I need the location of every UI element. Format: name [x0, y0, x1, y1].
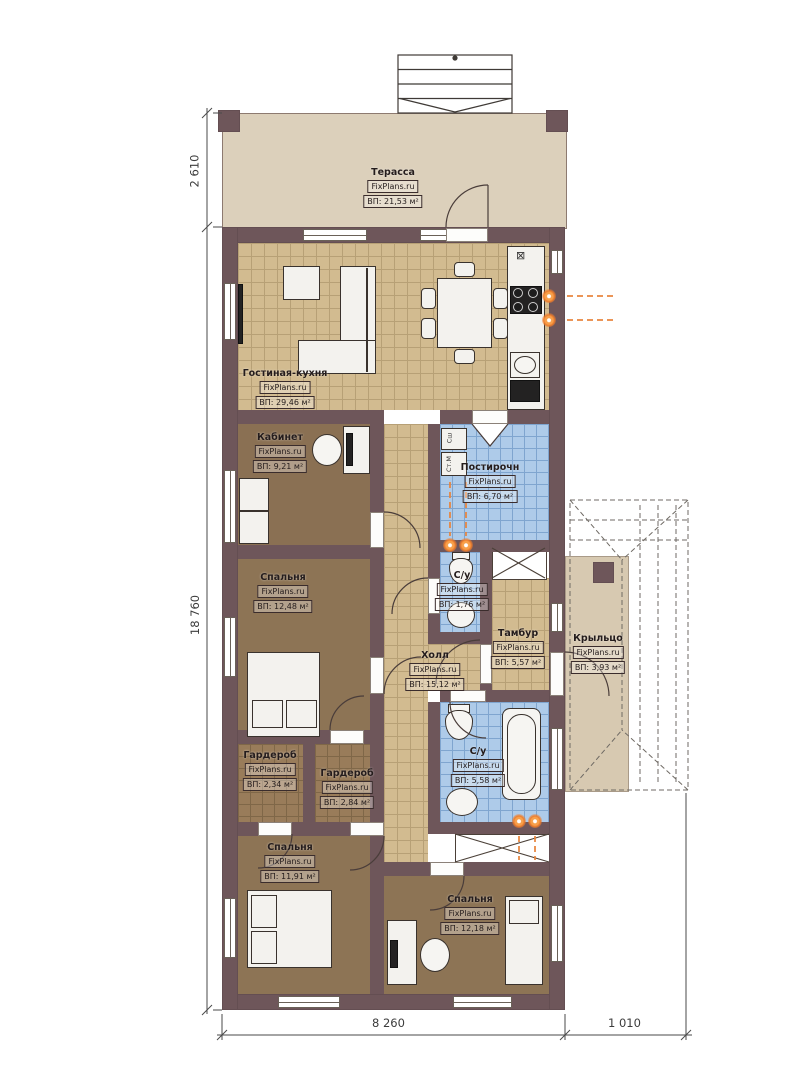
washer-label: Ст.М: [445, 456, 453, 472]
room-name: Постирочн: [461, 462, 520, 473]
window-bedroom3-bottom: [453, 996, 512, 1008]
window-wc2-right: [551, 728, 563, 790]
wall-tambour-bottom-a: [440, 690, 450, 702]
room-label-bedroom3: Спальня FixPlans.ru ВП: 12,18 м²: [440, 894, 499, 935]
window-bedroom3-right: [551, 905, 563, 962]
window-living-top: [303, 229, 367, 241]
room-label-wc2: С/у FixPlans.ru ВП: 5,58 м²: [451, 746, 505, 787]
room-label-wc1: С/у FixPlans.ru ВП: 1,76 м²: [435, 570, 489, 611]
dishwasher: [510, 380, 540, 402]
room-name: Тамбур: [498, 628, 538, 639]
room-name: Гардероб: [243, 750, 296, 761]
room-name: Кабинет: [257, 432, 303, 443]
dining-chair-top: [454, 262, 475, 277]
office-door-opening: [370, 512, 384, 548]
brand-tag: FixPlans.ru: [444, 907, 495, 920]
desk3-chair: [420, 938, 450, 972]
outer-wall-bottom: [222, 994, 565, 1010]
brand-tag: FixPlans.ru: [572, 646, 623, 659]
brand-tag: FixPlans.ru: [244, 763, 295, 776]
room-label-wardrobe2: Гардероб FixPlans.ru ВП: 2,84 м²: [320, 768, 374, 809]
closet-crossed-2: [455, 834, 551, 864]
dining-chair-bottom: [454, 349, 475, 364]
wardrobe1-door-opening: [258, 822, 292, 836]
wall-bedroom3-top-a: [384, 862, 430, 876]
stove: [510, 286, 542, 314]
dining-chair-left2: [421, 318, 436, 339]
room-name: Крыльцо: [573, 633, 623, 644]
brand-tag: FixPlans.ru: [259, 381, 310, 394]
room-name: С/у: [470, 746, 487, 757]
bathtub: [502, 708, 541, 800]
room-area: ВП: 12,48 м²: [253, 600, 312, 613]
room-name: Терасса: [371, 167, 415, 178]
side-table: [283, 266, 320, 300]
room-name: Гостиная-кухня: [243, 368, 328, 379]
flame-icon: [542, 289, 556, 303]
window-bedroom1-left: [224, 617, 236, 677]
brand-tag: FixPlans.ru: [436, 583, 487, 596]
room-label-laundry: Постирочн FixPlans.ru ВП: 6,70 м²: [461, 462, 520, 503]
closet-crossed-1: [492, 548, 547, 580]
room-area: ВП: 2,34 м²: [243, 778, 297, 791]
bedroom1-door-opening: [370, 657, 384, 694]
room-name: Спальня: [447, 894, 493, 905]
window-office-left: [224, 470, 236, 543]
room-name: С/у: [454, 570, 471, 581]
porch-column: [593, 562, 614, 583]
bed2-pillow-bottom: [251, 931, 277, 964]
bed3-pillow: [509, 900, 539, 924]
window-tambour-right: [551, 603, 563, 632]
flame-icon: [542, 313, 556, 327]
room-name: Гардероб: [320, 768, 373, 779]
room-label-bedroom1: Спальня FixPlans.ru ВП: 12,48 м²: [253, 572, 312, 613]
laundry-door-opening: [472, 410, 508, 424]
wall-office-bottom: [238, 545, 370, 559]
dining-chair-left1: [421, 288, 436, 309]
brand-tag: FixPlans.ru: [492, 641, 543, 654]
window-bedroom2-left: [224, 898, 236, 958]
wall-bedroom1-bottom-b: [364, 730, 370, 744]
room-label-living: Гостиная-кухня FixPlans.ru ВП: 29,46 м²: [243, 368, 328, 409]
room-area: ВП: 6,70 м²: [463, 490, 517, 503]
flame-icon: [528, 814, 542, 828]
room-area: ВП: 5,57 м²: [491, 656, 545, 669]
wardrobe2-door-opening: [330, 730, 364, 744]
window-bedroom2-bottom: [278, 996, 340, 1008]
flame-icon: [512, 814, 526, 828]
wc2-sink: [446, 788, 478, 816]
wall-living-bottom-right1: [440, 410, 472, 424]
room-area: ВП: 21,53 м²: [363, 195, 422, 208]
room-label-porch: Крыльцо FixPlans.ru ВП: 3,93 м²: [571, 633, 625, 674]
brand-tag: FixPlans.ru: [264, 855, 315, 868]
brand-tag: FixPlans.ru: [464, 475, 515, 488]
office-chair: [312, 434, 342, 466]
wall-bedroom3-top-b: [464, 862, 549, 876]
brand-tag: FixPlans.ru: [452, 759, 503, 772]
room-name: Спальня: [267, 842, 313, 853]
terrace-door-opening: [446, 228, 488, 242]
room-label-terrace: Терасса FixPlans.ru ВП: 21,53 м²: [363, 167, 422, 208]
office-sofa-split: [240, 510, 268, 512]
fridge-icon: ⊠: [516, 249, 525, 262]
bedroom2-door-opening: [350, 822, 384, 836]
wc2-door-opening: [450, 690, 486, 702]
wall-left-column-1: [370, 424, 384, 512]
flame-icon: [443, 538, 457, 552]
bed2-pillow-top: [251, 895, 277, 928]
tv-panel: [238, 284, 243, 344]
brand-tag: FixPlans.ru: [367, 180, 418, 193]
wall-wardrobe-divider: [303, 744, 315, 824]
room-area: ВП: 1,76 м²: [435, 598, 489, 611]
dining-table: [437, 278, 492, 348]
bed1-pillow-left: [252, 700, 283, 728]
room-area: ВП: 3,93 м²: [571, 661, 625, 674]
wall-left-column-3: [370, 694, 384, 994]
room-label-wardrobe1: Гардероб FixPlans.ru ВП: 2,34 м²: [243, 750, 297, 791]
room-label-office: Кабинет FixPlans.ru ВП: 9,21 м²: [253, 432, 307, 473]
brand-tag: FixPlans.ru: [254, 445, 305, 458]
room-area: ВП: 5,58 м²: [451, 774, 505, 787]
dim-terrace-depth: 2 610: [187, 155, 201, 188]
wall-laundry-left: [428, 424, 440, 578]
desk3-monitor: [390, 940, 398, 968]
window-kitchen-right: [551, 250, 563, 274]
floor-plan: ⊠ Сш Ст.М: [0, 0, 792, 1080]
outer-wall-top: [222, 227, 565, 243]
office-monitor: [346, 433, 353, 466]
wall-living-bottom-left: [238, 410, 384, 424]
dryer-label: Сш: [445, 433, 453, 444]
dim-porch-width: 1 010: [608, 1016, 641, 1030]
brand-tag: FixPlans.ru: [321, 781, 372, 794]
dining-chair-right2: [493, 318, 508, 339]
room-area: ВП: 2,84 м²: [320, 796, 374, 809]
room-area: ВП: 29,46 м²: [255, 396, 314, 409]
room-label-hall: Холл FixPlans.ru ВП: 15,12 м²: [405, 650, 464, 691]
wall-wc2-left: [428, 702, 440, 834]
room-area: ВП: 9,21 м²: [253, 460, 307, 473]
wall-bedroom2-top-b: [292, 822, 350, 836]
room-area: ВП: 12,18 м²: [440, 922, 499, 935]
room-area: ВП: 11,91 м²: [260, 870, 319, 883]
room-name: Холл: [421, 650, 449, 661]
wall-bedroom2-top-a: [238, 822, 258, 836]
terrace-post-left: [218, 110, 240, 132]
room-area: ВП: 15,12 м²: [405, 678, 464, 691]
flame-icon: [459, 538, 473, 552]
dim-house-width: 8 260: [372, 1016, 405, 1030]
wall-living-bottom-right2: [508, 410, 549, 424]
wall-tambour-bottom-b: [486, 690, 549, 702]
kitchen-sink-basin: [514, 356, 536, 374]
room-label-bedroom2: Спальня FixPlans.ru ВП: 11,91 м²: [260, 842, 319, 883]
bedroom3-door-opening: [430, 862, 464, 876]
terrace-steps: [398, 55, 512, 113]
bed1-pillow-right: [286, 700, 317, 728]
entrance-door-opening: [550, 652, 564, 696]
sofa-back-line: [366, 268, 368, 372]
room-name: Спальня: [260, 572, 306, 583]
dim-house-length: 18 760: [188, 595, 202, 635]
dining-chair-right1: [493, 288, 508, 309]
brand-tag: FixPlans.ru: [257, 585, 308, 598]
brand-tag: FixPlans.ru: [409, 663, 460, 676]
porch-floor: [565, 556, 629, 792]
wall-left-column-2: [370, 548, 384, 657]
window-living-left: [224, 283, 236, 340]
terrace-post-right: [546, 110, 568, 132]
room-label-tambour: Тамбур FixPlans.ru ВП: 5,57 м²: [491, 628, 545, 669]
